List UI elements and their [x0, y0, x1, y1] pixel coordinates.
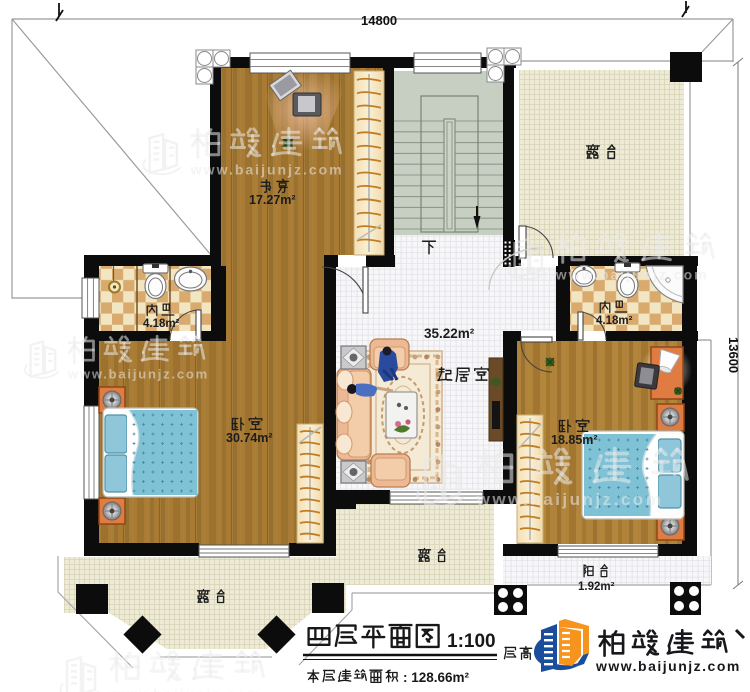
svg-text:1.92m²: 1.92m² [578, 581, 615, 593]
svg-text:14800: 14800 [361, 13, 397, 28]
svg-text:1:100: 1:100 [447, 631, 496, 652]
svg-text:18.85m²: 18.85m² [551, 433, 598, 447]
svg-text:13600: 13600 [726, 337, 741, 373]
svg-text:www.baijunjz.com: www.baijunjz.com [595, 658, 741, 674]
svg-text:17.27m²: 17.27m² [249, 193, 296, 207]
svg-text:4.18m²: 4.18m² [596, 315, 633, 327]
svg-text:35.22m²: 35.22m² [424, 326, 475, 341]
svg-text:www.baijunjz.com: www.baijunjz.com [190, 162, 344, 178]
svg-text:30.74m²: 30.74m² [226, 431, 273, 445]
svg-text:: 128.66m²: : 128.66m² [403, 670, 470, 685]
svg-text:www.baijunjz.com: www.baijunjz.com [555, 267, 709, 283]
svg-text:4.18m²: 4.18m² [143, 318, 180, 330]
svg-text:www.baijunjz.com: www.baijunjz.com [108, 686, 262, 692]
svg-text:www.baijunjz.com: www.baijunjz.com [67, 367, 209, 382]
svg-text:www.baijunjz.com: www.baijunjz.com [476, 490, 664, 509]
